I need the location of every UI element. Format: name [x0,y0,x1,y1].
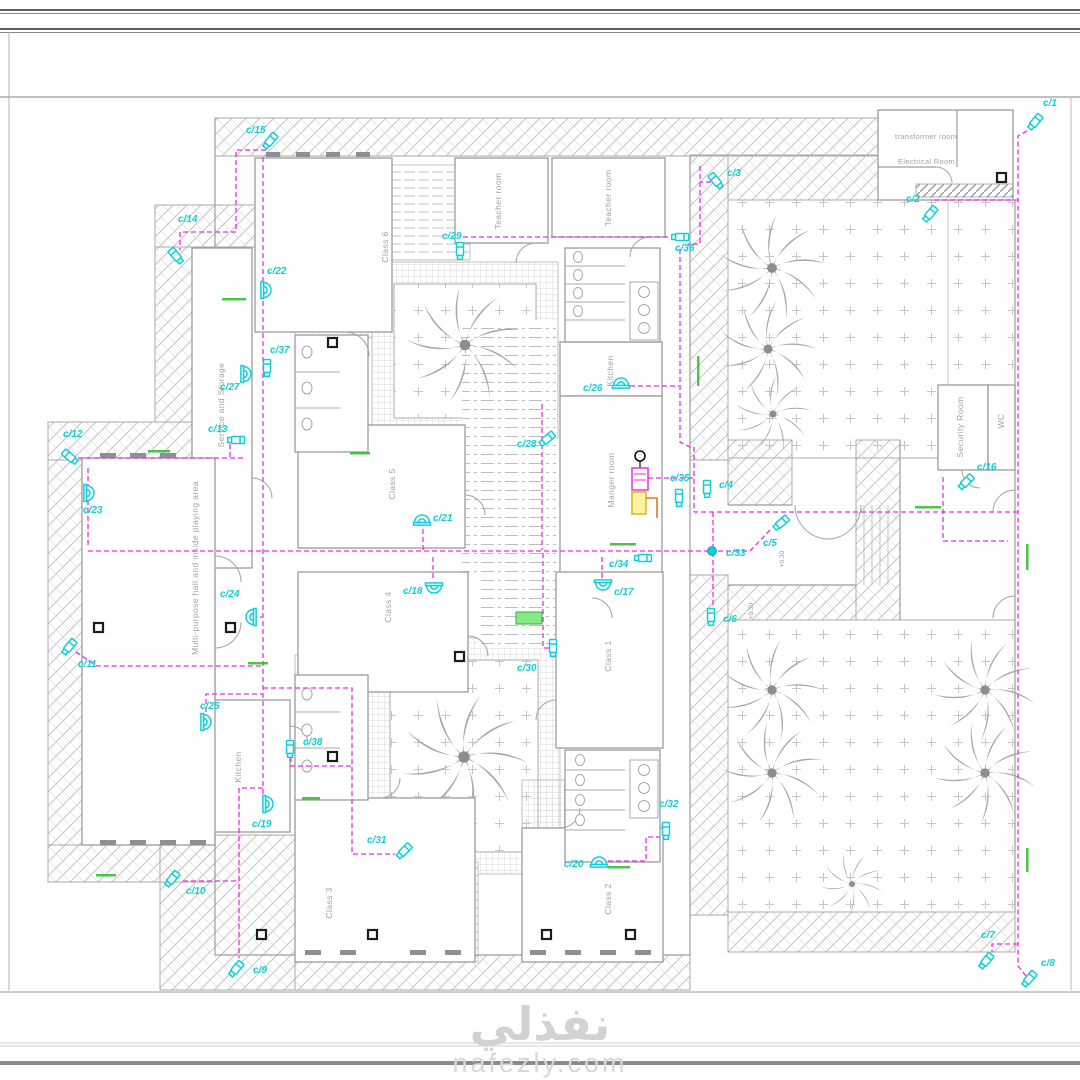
camera-icon-c-38 [287,741,294,758]
camera-icon-c-32 [663,823,670,840]
room-label-class3: Class 3 [324,887,334,918]
dvr-unit [632,468,648,490]
camera-icon-c-4 [704,481,711,498]
camera-label-c-38: c/38 [303,737,323,748]
room-label-class5: Class 5 [387,468,397,499]
camera-label-c-32: c/32 [659,799,679,810]
room-label-transformer: transformer room [895,132,957,141]
camera-label-c-4: c/4 [719,480,733,491]
camera-label-c-28: c/28 [517,439,537,450]
room-class3 [295,798,475,962]
camera-icon-c-30 [550,640,557,657]
camera-label-c-21: c/21 [433,513,453,524]
camera-label-c-30: c/30 [517,663,537,674]
camera-icon-c-37 [264,360,271,377]
room-label-hall: Multi-purpose hall and inside playing ar… [190,481,200,655]
room-label-electrical: Electrical Room [898,157,955,166]
room-label-teacher2: Teacher room [603,170,613,227]
camera-icon-c-1 [1027,113,1043,130]
watermark-site: nafezly.com [452,1048,627,1078]
room-label-kitchen-top: Kitchen [605,355,615,386]
camera-label-c-25: c/25 [200,701,220,712]
room-label-manger: Manger room [606,453,616,508]
room-label-class6: Class 6 [380,231,390,262]
camera-label-c-17: c/17 [614,587,634,598]
camera-label-c-1: c/1 [1043,98,1057,109]
camera-label-c-5: c/5 [763,538,777,549]
camera-label-c-12: c/12 [63,429,83,440]
level-label-a: +0.30 [779,550,786,567]
camera-icon-c-5 [772,515,789,531]
camera-icon-c-6 [708,609,715,626]
camera-label-c-37: c/37 [270,345,290,356]
camera-label-c-10: c/10 [186,886,206,897]
room-label-wc: WC [996,414,1006,429]
camera-label-c-7: c/7 [981,930,995,941]
camera-label-c-14: c/14 [178,214,198,225]
green-note-box [516,612,542,624]
camera-label-c-9: c/9 [253,965,267,976]
camera-label-c-6: c/6 [723,614,737,625]
camera-label-c-23: c/23 [83,505,103,516]
camera-label-c-31: c/31 [367,835,387,846]
camera-icon-c-36 [672,234,689,241]
camera-label-c-26: c/26 [583,383,603,394]
camera-label-c-33: c/33 [726,548,746,559]
room-label-kitchen-bottom: Kitchen [233,751,243,782]
room-class4 [298,572,468,692]
camera-label-c-16: c/16 [977,462,997,473]
camera-label-c-36: c/36 [675,243,695,254]
level-label-b: +0.30 [748,602,755,619]
room-label-class1: Class 1 [603,640,613,671]
camera-icon-c-24 [246,609,256,626]
room-label-security: Security Room [955,397,965,458]
watermark-arabic: نفذلي [470,997,611,1051]
camera-label-c-35: c/35 [670,473,690,484]
ups-unit [632,492,646,514]
camera-icon-c-34 [635,555,652,562]
camera-label-c-20: c/20 [564,859,584,870]
camera-icon-c-13 [228,437,245,444]
room-label-teacher1: Teacher room [493,173,503,230]
camera-label-c-29: c/29 [442,231,462,242]
room-class6 [255,158,392,332]
camera-label-c-3: c/3 [727,168,741,179]
camera-icon-c-7 [978,952,994,969]
camera-label-c-11: c/11 [78,659,97,670]
camera-icon-c-35 [676,490,683,507]
camera-label-c-18: c/18 [403,586,423,597]
camera-icon-c-16 [958,474,975,491]
camera-label-c-2: c/2 [906,194,920,205]
floorplan-canvas: transformer room Electrical Room Class 6… [0,0,1080,1080]
camera-label-c-27: c/27 [220,382,240,393]
camera-label-c-19: c/19 [252,819,272,830]
camera-label-c-34: c/34 [609,559,629,570]
camera-label-c-24: c/24 [220,589,240,600]
camera-label-c-15: c/15 [246,125,266,136]
watermark: نفذلي nafezly.com [452,997,627,1078]
camera-label-c-13: c/13 [208,424,228,435]
camera-icon-c-33 [708,547,717,556]
camera-label-c-22: c/22 [267,266,287,277]
room-label-class2: Class 2 [603,883,613,914]
camera-label-c-8: c/8 [1041,958,1055,969]
camera-icon-c-29 [457,243,464,260]
room-label-class4: Class 4 [383,591,393,622]
